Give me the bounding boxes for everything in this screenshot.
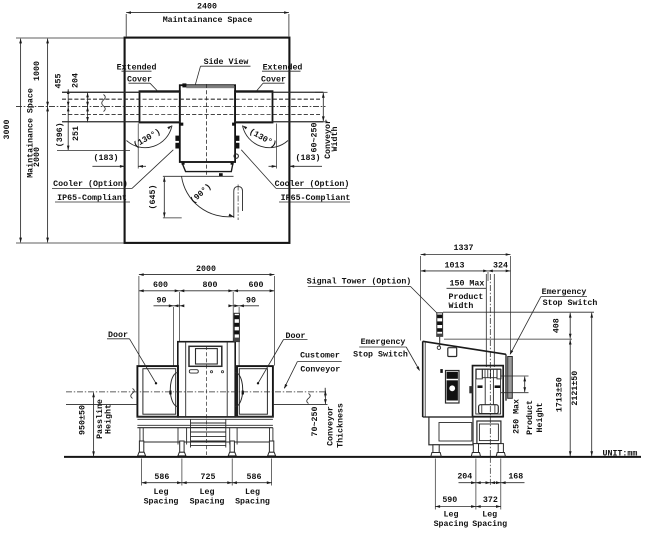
- svg-text:455: 455: [55, 74, 64, 89]
- svg-text:UNIT:mm: UNIT:mm: [603, 449, 638, 458]
- svg-text:Leg: Leg: [245, 488, 260, 497]
- svg-text:2000: 2000: [33, 147, 42, 167]
- svg-text:Thickness: Thickness: [335, 403, 345, 448]
- svg-text:Customer: Customer: [300, 351, 340, 360]
- svg-text:Leg: Leg: [200, 488, 215, 497]
- svg-text:168: 168: [508, 473, 523, 482]
- svg-text:Spacing: Spacing: [235, 497, 270, 507]
- svg-text:90: 90: [157, 296, 167, 305]
- svg-text:372: 372: [483, 496, 498, 505]
- svg-text:IP65-Compliant: IP65-Compliant: [281, 193, 351, 203]
- svg-text:60~250: 60~250: [310, 123, 319, 153]
- svg-text:Emergency: Emergency: [542, 288, 587, 297]
- svg-text:(183): (183): [296, 153, 321, 163]
- svg-text:Width: Width: [449, 301, 474, 311]
- svg-text:600: 600: [249, 281, 264, 290]
- svg-text:Leg: Leg: [482, 511, 497, 520]
- svg-text:(396): (396): [55, 122, 65, 147]
- svg-text:Leg: Leg: [444, 511, 459, 520]
- svg-text:204: 204: [457, 473, 472, 482]
- svg-text:Cooler (Option): Cooler (Option): [53, 179, 128, 189]
- svg-text:Emergency: Emergency: [361, 338, 406, 347]
- svg-text:70~250: 70~250: [311, 407, 320, 437]
- svg-text:2121±50: 2121±50: [571, 371, 580, 406]
- svg-text:950±50: 950±50: [78, 405, 87, 435]
- svg-text:1337: 1337: [454, 244, 474, 253]
- svg-text:150 Max: 150 Max: [450, 280, 485, 289]
- svg-text:Maintainance Space: Maintainance Space: [163, 15, 253, 25]
- svg-text:Spacing: Spacing: [190, 497, 225, 507]
- svg-text:(183): (183): [94, 153, 119, 163]
- svg-text:Product: Product: [525, 400, 535, 435]
- svg-text:324: 324: [493, 261, 508, 270]
- svg-text:800: 800: [203, 281, 218, 290]
- svg-text:Stop Switch: Stop Switch: [353, 350, 408, 360]
- svg-text:Passline: Passline: [95, 399, 105, 439]
- svg-text:Stop Switch: Stop Switch: [543, 298, 598, 308]
- svg-text:725: 725: [201, 473, 216, 482]
- svg-text:Spacing: Spacing: [144, 497, 179, 507]
- svg-text:(645): (645): [148, 185, 158, 210]
- svg-text:Signal Tower (Option): Signal Tower (Option): [307, 276, 412, 286]
- svg-text:Spacing: Spacing: [434, 519, 469, 529]
- svg-text:590: 590: [442, 496, 457, 505]
- svg-text:Height: Height: [103, 404, 113, 434]
- svg-text:Height: Height: [535, 403, 545, 433]
- svg-text:1013: 1013: [445, 261, 465, 270]
- svg-text:IP65-Compliant: IP65-Compliant: [57, 193, 127, 203]
- svg-text:Spacing: Spacing: [472, 519, 507, 529]
- svg-text:600: 600: [153, 281, 168, 290]
- svg-text:Conveyor: Conveyor: [300, 365, 340, 374]
- svg-text:204: 204: [72, 73, 81, 88]
- svg-text:Conveyor: Conveyor: [327, 406, 336, 446]
- svg-text:3000: 3000: [3, 120, 12, 140]
- svg-text:586: 586: [154, 473, 169, 482]
- svg-text:2400: 2400: [197, 3, 217, 12]
- svg-text:Leg: Leg: [154, 488, 169, 497]
- svg-text:250 Max: 250 Max: [513, 399, 522, 434]
- svg-text:408: 408: [553, 318, 562, 333]
- svg-text:90: 90: [246, 296, 256, 305]
- svg-text:1000: 1000: [33, 61, 42, 81]
- svg-text:586: 586: [247, 473, 262, 482]
- svg-text:Side View: Side View: [204, 57, 249, 67]
- svg-text:2000: 2000: [196, 265, 216, 274]
- svg-text:251: 251: [72, 126, 81, 141]
- svg-text:Width: Width: [330, 127, 340, 152]
- svg-text:1713±50: 1713±50: [556, 377, 565, 412]
- svg-text:Product: Product: [449, 292, 484, 302]
- svg-text:Cooler (Option): Cooler (Option): [275, 179, 350, 189]
